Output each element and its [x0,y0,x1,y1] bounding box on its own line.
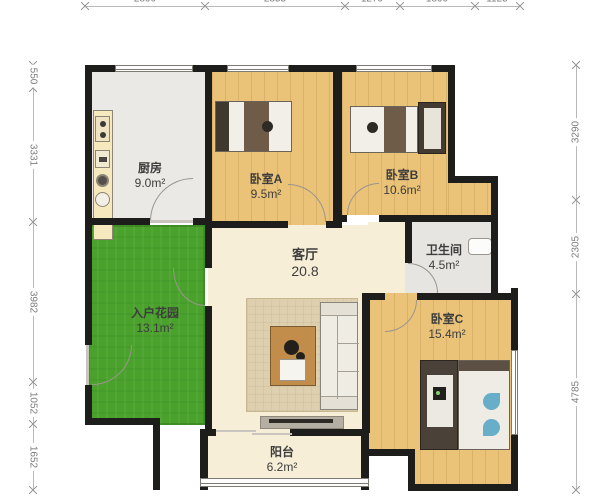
room-label-living: 客厅 20.8 [291,247,318,281]
dimension-label-left: 1652 [28,443,39,471]
wardrobe-icon [420,360,458,450]
dimension-tick [29,218,37,226]
dimension-label-right: 4785 [571,378,582,406]
room-label-balcony: 阳台 6.2m² [267,445,298,475]
dimension-tick [29,486,37,494]
dimension-label-left: 550 [28,65,39,88]
room-label-bedroomC: 卧室C 15.4m² [428,312,465,342]
room-label-bathroom: 卫生间 4.5m² [426,243,462,273]
dimension-tick [29,378,37,386]
sink-icon [96,174,109,187]
wall-segment [417,293,518,300]
top-dimension-line [85,6,520,7]
room-label-garden: 入户花园 13.1m² [131,306,179,336]
sliding-door [252,433,292,435]
wall-segment [491,176,498,300]
dimension-tick [572,61,580,69]
room-label-bedroomA: 卧室A 9.5m² [250,172,283,202]
room-name: 入户花园 [131,306,179,321]
bed-icon [215,101,292,152]
dimension-tick [396,2,404,10]
room-label-bedroomB: 卧室B 10.6m² [383,168,420,198]
wall-segment [153,418,160,490]
sliding-door [216,430,256,432]
window-symbol [511,350,518,435]
room-name: 阳台 [267,445,298,460]
dimension-tick [29,420,37,428]
wall-segment [85,65,92,345]
room-name: 卧室A [250,172,283,187]
wall-segment [379,215,498,222]
dimension-tick [341,2,349,10]
wardrobe-icon [418,102,446,154]
dimension-label-top: 2890 [131,0,159,5]
kitchen-cabinet-icon [95,150,110,168]
wall-segment [362,293,370,433]
wall-segment [205,65,212,225]
door-opening [150,220,193,223]
room-area: 4.5m² [426,258,462,273]
dimension-tick [201,2,209,10]
wall-segment [212,221,288,228]
room-area: 6.2m² [267,460,298,475]
room-area: 13.1m² [131,321,179,336]
wall-segment [333,65,342,228]
wall-segment [290,429,368,436]
room-area: 15.4m² [428,327,465,342]
wall-segment [208,429,216,436]
bathroom-sink-icon [468,238,492,255]
window-symbol [227,65,289,72]
wall-segment [368,293,385,300]
wall-segment [205,306,212,432]
wall-segment [193,218,212,225]
room-name: 卧室B [383,168,420,183]
room-name: 客厅 [291,247,318,263]
washing-machine-icon [95,192,110,207]
tv-cabinet-icon [260,416,344,429]
dimension-label-left: 1052 [28,389,39,417]
room-name: 厨房 [135,161,166,176]
room-area: 10.6m² [383,183,420,198]
floor-plan: 厨房 9.0m² 卧室A 9.5m² 卧室B 10.6m² 卫生间 4.5m² … [0,0,608,500]
coffee-table-icon [270,326,316,386]
dimension-tick [572,486,580,494]
window-symbol [356,65,432,72]
wall-segment [448,65,455,183]
room-name: 卫生间 [426,243,462,258]
window-symbol [115,65,193,72]
dimension-tick [471,2,479,10]
dimension-label-right: 3290 [571,118,582,146]
wall-segment [342,215,347,222]
wall-segment [326,221,342,228]
dimension-label-left: 3331 [28,141,39,169]
dimension-label-right: 2305 [571,233,582,261]
dimension-tick [516,2,524,10]
dimension-label-top: 1890 [423,0,451,5]
room-hallway-floor [368,222,405,293]
room-area: 20.8 [291,263,318,281]
door-opening [86,345,89,385]
wall-segment [405,222,412,263]
dimension-tick [572,290,580,298]
stove-icon [95,116,110,142]
window-symbol [200,478,369,487]
room-area: 9.5m² [250,187,283,202]
wall-segment [408,484,518,491]
bed-icon [350,106,418,153]
dimension-label-left: 3982 [28,288,39,316]
dimension-label-top: 2855 [261,0,289,5]
wall-segment [85,418,160,425]
dimension-label-top: 1279 [358,0,386,5]
room-area: 9.0m² [135,176,166,191]
wall-segment [361,449,415,456]
dimension-label-top: 1125 [483,0,511,5]
dimension-tick [81,2,89,10]
room-label-kitchen: 厨房 9.0m² [135,161,166,191]
wall-segment [85,218,150,225]
bed-icon [458,360,510,450]
dimension-tick [572,196,580,204]
room-name: 卧室C [428,312,465,327]
sofa-icon [320,302,358,410]
wall-segment [205,225,212,268]
